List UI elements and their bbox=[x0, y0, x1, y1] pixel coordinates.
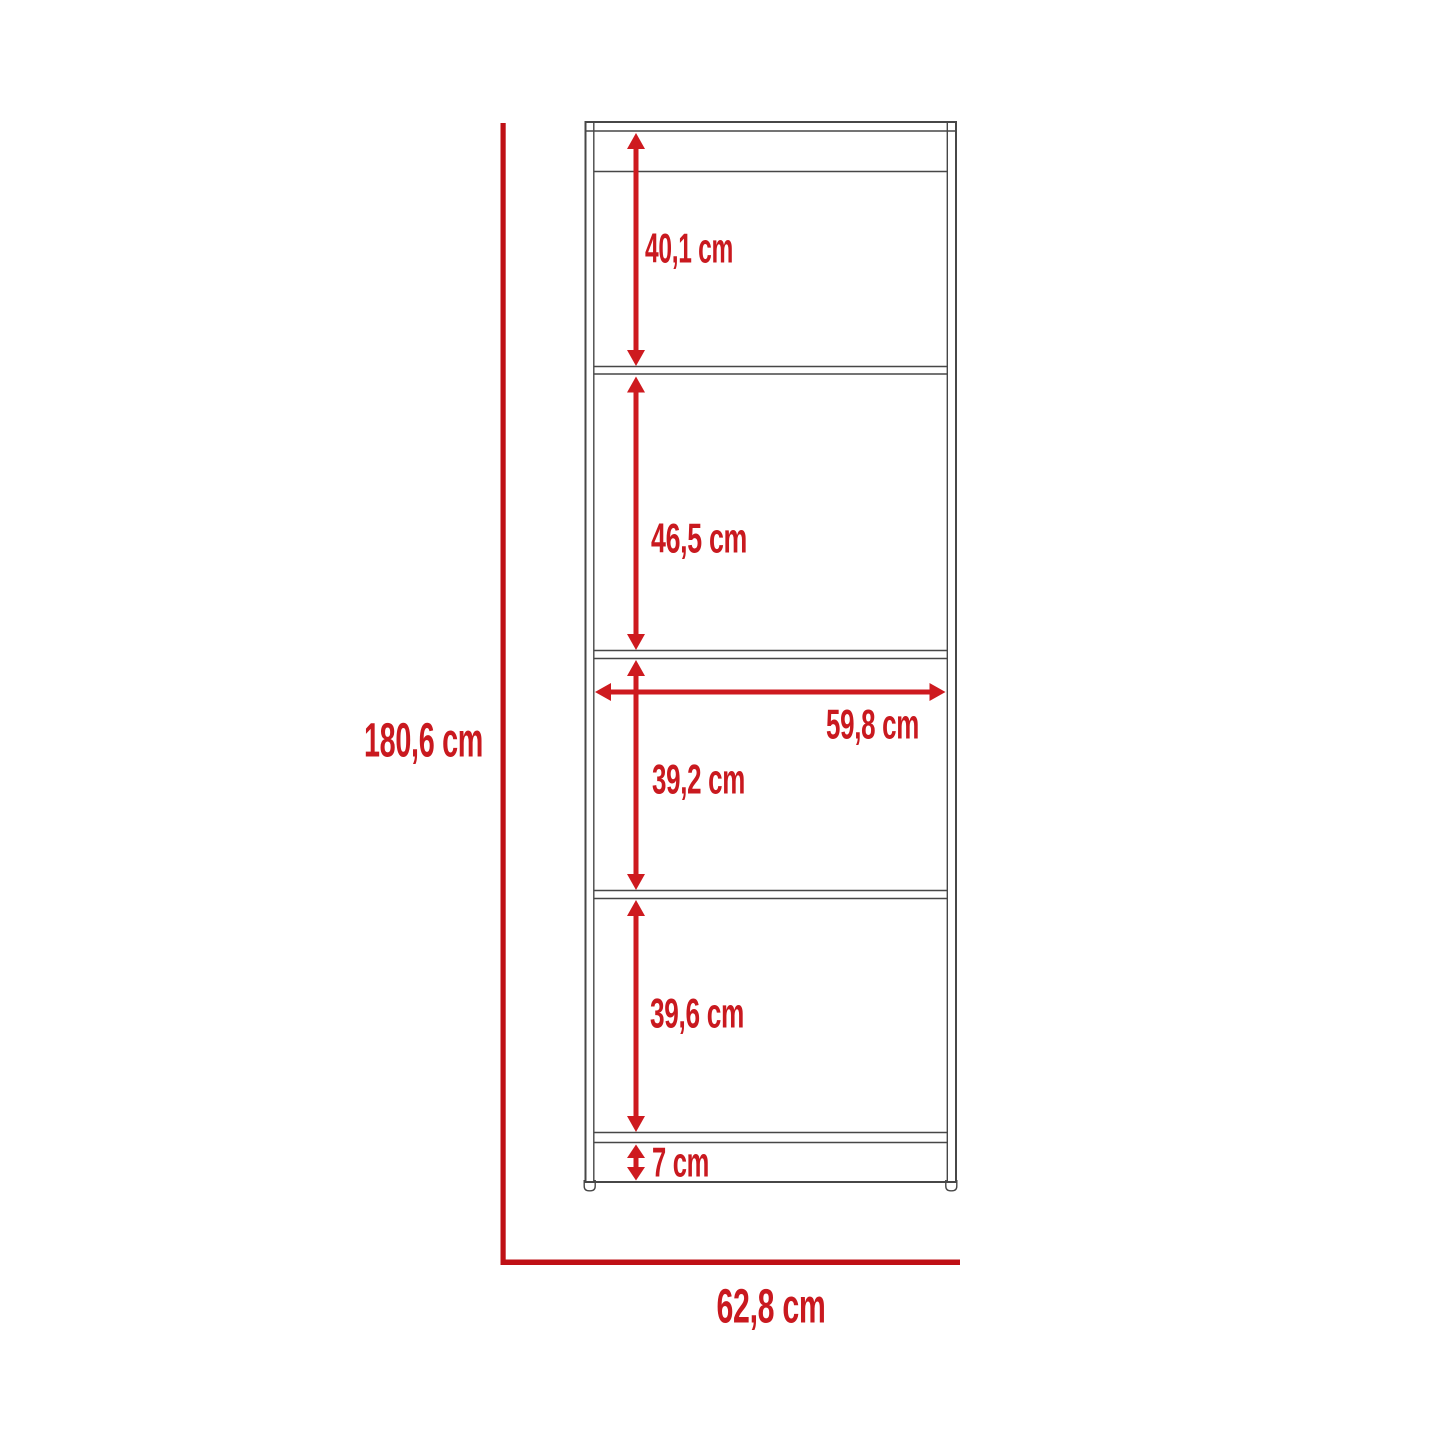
overall-height-label: 180,6 cm bbox=[364, 715, 483, 768]
section-3-height-label: 39,2 cm bbox=[652, 756, 745, 803]
base-height-label: 7 cm bbox=[652, 1139, 709, 1186]
section-1-height-label: 40,1 cm bbox=[645, 225, 733, 272]
overall-width-extent-line bbox=[501, 1260, 961, 1266]
inner-width-label: 59,8 cm bbox=[826, 701, 919, 748]
cabinet-outline bbox=[584, 122, 957, 1191]
arrow-inner-width bbox=[595, 683, 946, 701]
arrow-base bbox=[627, 1145, 645, 1181]
overall-height-extent-line bbox=[501, 123, 506, 1265]
arrow-section-1 bbox=[627, 133, 645, 366]
overall-width-label: 62,8 cm bbox=[717, 1281, 826, 1334]
furniture-dimension-diagram: 40,1 cm 46,5 cm 59,8 cm 39,2 cm 39,6 cm … bbox=[0, 0, 1445, 1445]
dimension-arrows bbox=[595, 133, 946, 1181]
dimension-diagram-page: 40,1 cm 46,5 cm 59,8 cm 39,2 cm 39,6 cm … bbox=[0, 0, 1445, 1445]
arrow-section-4 bbox=[627, 900, 645, 1132]
arrow-section-2 bbox=[627, 377, 645, 651]
section-2-height-label: 46,5 cm bbox=[651, 515, 747, 562]
cabinet-outer-frame bbox=[586, 122, 957, 1182]
section-4-height-label: 39,6 cm bbox=[650, 990, 744, 1037]
